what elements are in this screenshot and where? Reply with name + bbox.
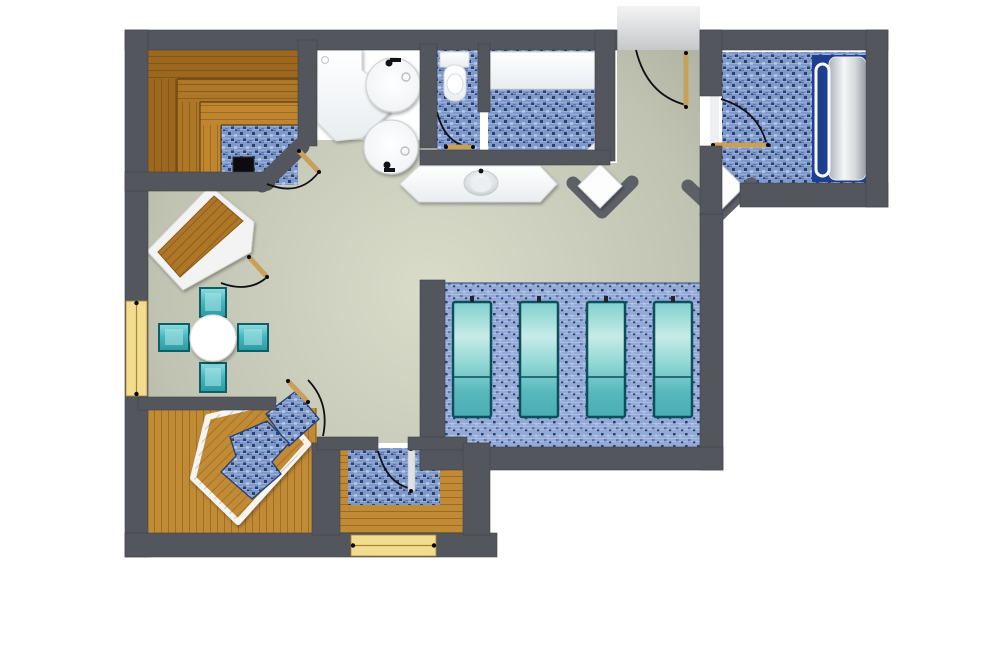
lounger-4 bbox=[654, 296, 692, 417]
massage-bed bbox=[829, 57, 866, 180]
treatment-room bbox=[710, 52, 868, 185]
wc-room bbox=[437, 50, 480, 150]
toilet bbox=[440, 52, 469, 101]
wet-room-door-leaf bbox=[408, 449, 415, 491]
entrance-corridor bbox=[617, 6, 700, 50]
vanity-counter bbox=[400, 166, 557, 202]
treatment-door-jamb bbox=[710, 96, 719, 146]
steam-bench bbox=[490, 52, 595, 89]
floor-plan-stage bbox=[0, 0, 990, 660]
lounger-2 bbox=[520, 296, 558, 417]
steam-room bbox=[488, 50, 602, 158]
round-shower-1 bbox=[366, 58, 420, 112]
exterior-door-bottom bbox=[351, 535, 436, 556]
round-shower-2 bbox=[364, 120, 418, 174]
exterior-window-left bbox=[126, 301, 147, 396]
lounger-1 bbox=[453, 296, 491, 417]
round-table bbox=[190, 315, 236, 361]
floor-plan-svg bbox=[0, 0, 990, 660]
washbasin-bowl bbox=[471, 178, 491, 192]
relaxation-platform bbox=[445, 282, 700, 447]
faucet-icon bbox=[479, 169, 484, 174]
lounger-3 bbox=[587, 296, 625, 417]
